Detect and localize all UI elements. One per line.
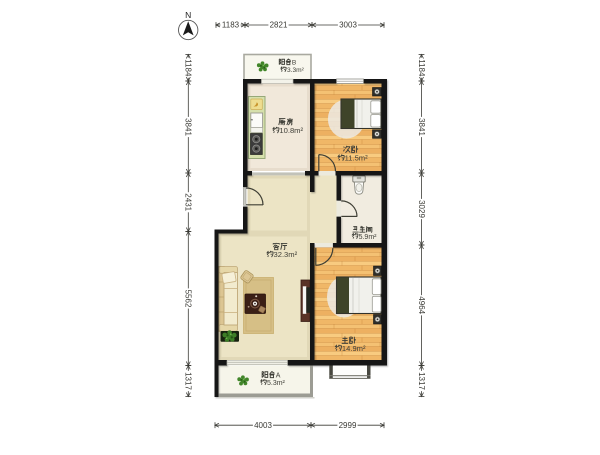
svg-text:10.8m²: 10.8m²	[279, 126, 303, 135]
svg-text:5.9m²: 5.9m²	[359, 234, 378, 241]
svg-text:1184: 1184	[184, 59, 193, 77]
svg-text:1317: 1317	[417, 372, 426, 390]
svg-text:4964: 4964	[417, 296, 426, 314]
svg-text:2999: 2999	[339, 421, 357, 430]
svg-text:1317: 1317	[184, 372, 193, 390]
svg-text:5562: 5562	[184, 290, 193, 308]
svg-text:N: N	[185, 10, 191, 20]
svg-text:3.3m²: 3.3m²	[287, 67, 305, 74]
svg-text:B: B	[292, 59, 297, 66]
svg-text:3003: 3003	[339, 21, 357, 30]
svg-text:A: A	[276, 372, 281, 379]
svg-text:11.5m²: 11.5m²	[345, 154, 369, 163]
svg-text:32.3m²: 32.3m²	[274, 250, 298, 259]
svg-text:2821: 2821	[270, 21, 288, 30]
svg-text:4003: 4003	[254, 421, 272, 430]
svg-text:3841: 3841	[184, 118, 193, 136]
svg-text:3029: 3029	[417, 200, 426, 218]
svg-text:1184: 1184	[417, 59, 426, 77]
svg-text:3841: 3841	[417, 118, 426, 136]
svg-text:2431: 2431	[184, 193, 193, 211]
svg-text:5.3m²: 5.3m²	[267, 380, 286, 387]
svg-text:14.9m²: 14.9m²	[342, 344, 366, 353]
svg-text:1183: 1183	[222, 21, 240, 30]
